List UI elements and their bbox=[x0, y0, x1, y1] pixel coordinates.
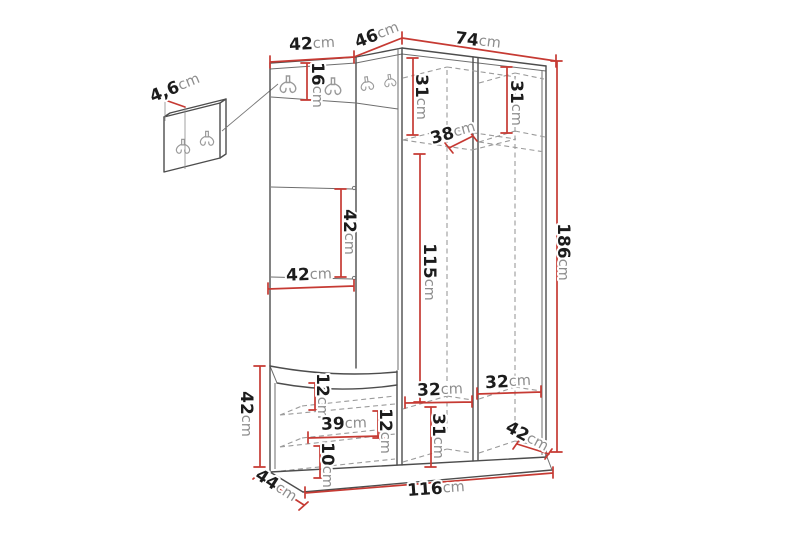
svg-text:12cm: 12cm bbox=[312, 373, 332, 419]
svg-text:186cm: 186cm bbox=[553, 223, 573, 281]
svg-text:12cm: 12cm bbox=[375, 408, 395, 454]
svg-text:32cm: 32cm bbox=[485, 371, 532, 393]
dimension-corner-width: 46cm bbox=[352, 17, 402, 57]
dimension-bay2-shelf-width: 32cm bbox=[477, 371, 541, 399]
svg-text:16cm: 16cm bbox=[307, 62, 327, 108]
coat-hook-icon bbox=[200, 131, 213, 145]
svg-text:116cm: 116cm bbox=[407, 477, 466, 501]
svg-text:31cm: 31cm bbox=[428, 413, 448, 459]
dimension-bay2-top-height: 31cm bbox=[501, 67, 526, 133]
svg-text:42cm: 42cm bbox=[236, 391, 256, 437]
dimension-bay1-shelf-width: 32cm bbox=[405, 379, 472, 408]
svg-text:42cm: 42cm bbox=[286, 264, 332, 286]
dimension-bench-shelf-gap: 12cm bbox=[373, 408, 395, 454]
dimension-bay1-top-height: 31cm bbox=[407, 58, 431, 135]
wardrobe-bay2-hidden-lines bbox=[479, 73, 545, 453]
bench-seat-front-edge bbox=[277, 383, 397, 389]
dimension-lines: 4,6cm 42cm 46cm 74cm 186cm 16cm bbox=[147, 17, 573, 510]
coat-hook-icon bbox=[384, 74, 397, 87]
svg-text:42cm: 42cm bbox=[502, 417, 552, 456]
svg-text:42cm: 42cm bbox=[289, 33, 336, 55]
dimension-shelf-depth: 38cm bbox=[428, 117, 478, 153]
dimension-panel-thickness: 4,6cm bbox=[147, 69, 203, 169]
svg-text:10cm: 10cm bbox=[317, 442, 337, 488]
dimension-wardrobe-depth: 42cm bbox=[502, 417, 552, 459]
dimension-bench-height: 42cm bbox=[236, 366, 265, 467]
furniture-dimension-diagram: 4,6cm 42cm 46cm 74cm 186cm 16cm bbox=[0, 0, 800, 533]
dimension-bench-bottom-gap: 10cm bbox=[314, 442, 337, 488]
wall-hook-panel bbox=[164, 99, 226, 172]
dimension-bay1-lower-height: 31cm bbox=[425, 407, 448, 467]
dimension-total-height: 186cm bbox=[551, 61, 573, 452]
svg-text:31cm: 31cm bbox=[506, 80, 526, 126]
dimension-right-section-width: 74cm bbox=[402, 28, 556, 67]
svg-text:39cm: 39cm bbox=[321, 413, 367, 435]
plinth-right-edge bbox=[547, 457, 552, 470]
bench-seat-back-edge bbox=[270, 366, 397, 374]
wardrobe-divider bbox=[473, 57, 478, 461]
dimension-hook-rail-height: 16cm bbox=[301, 62, 327, 108]
plinth-top-edge bbox=[270, 457, 547, 472]
hook-rail-bottom-edge bbox=[271, 97, 398, 109]
dimension-hanging-height: 115cm bbox=[414, 154, 439, 402]
svg-text:42cm: 42cm bbox=[339, 209, 359, 255]
svg-text:38cm: 38cm bbox=[428, 117, 478, 149]
coat-hook-icon bbox=[360, 76, 374, 91]
seam-button bbox=[352, 276, 355, 279]
dimension-bench-top-gap: 12cm bbox=[309, 373, 332, 419]
coat-hook-icon bbox=[280, 76, 296, 92]
coat-hook-icon bbox=[176, 139, 189, 153]
hook-rail bbox=[280, 74, 396, 95]
svg-text:115cm: 115cm bbox=[419, 243, 439, 301]
svg-text:4,6cm: 4,6cm bbox=[147, 69, 203, 107]
svg-text:31cm: 31cm bbox=[411, 74, 431, 120]
seam-button bbox=[352, 186, 355, 189]
dimension-total-width: 116cm bbox=[305, 467, 553, 501]
